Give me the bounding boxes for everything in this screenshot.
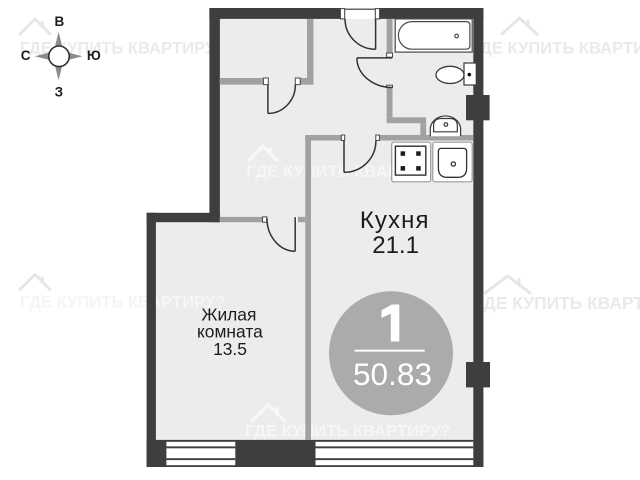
svg-text:Кухня: Кухня [360, 207, 430, 234]
svg-text:В: В [55, 14, 65, 29]
svg-text:З: З [55, 85, 63, 100]
svg-text:50.83: 50.83 [353, 356, 432, 392]
svg-text:21.1: 21.1 [372, 232, 419, 259]
svg-text:Ю: Ю [87, 48, 101, 63]
svg-text:ГДЕ КУПИТЬ КВАРТИРУ?: ГДЕ КУПИТЬ КВАРТИРУ? [474, 293, 640, 313]
svg-text:ГДЕ КУПИТЬ КВАРТИРУ?: ГДЕ КУПИТЬ КВАРТИРУ? [245, 422, 450, 441]
svg-text:13.5: 13.5 [213, 339, 247, 359]
svg-text:С: С [21, 48, 31, 63]
svg-text:ГДЕ КУПИТЬ КВАРТИРУ?: ГДЕ КУПИТЬ КВАРТИРУ? [471, 39, 640, 58]
svg-text:ГДЕ КУПИТЬ КВАРТИРУ?: ГДЕ КУПИТЬ КВАРТИРУ? [20, 293, 225, 312]
